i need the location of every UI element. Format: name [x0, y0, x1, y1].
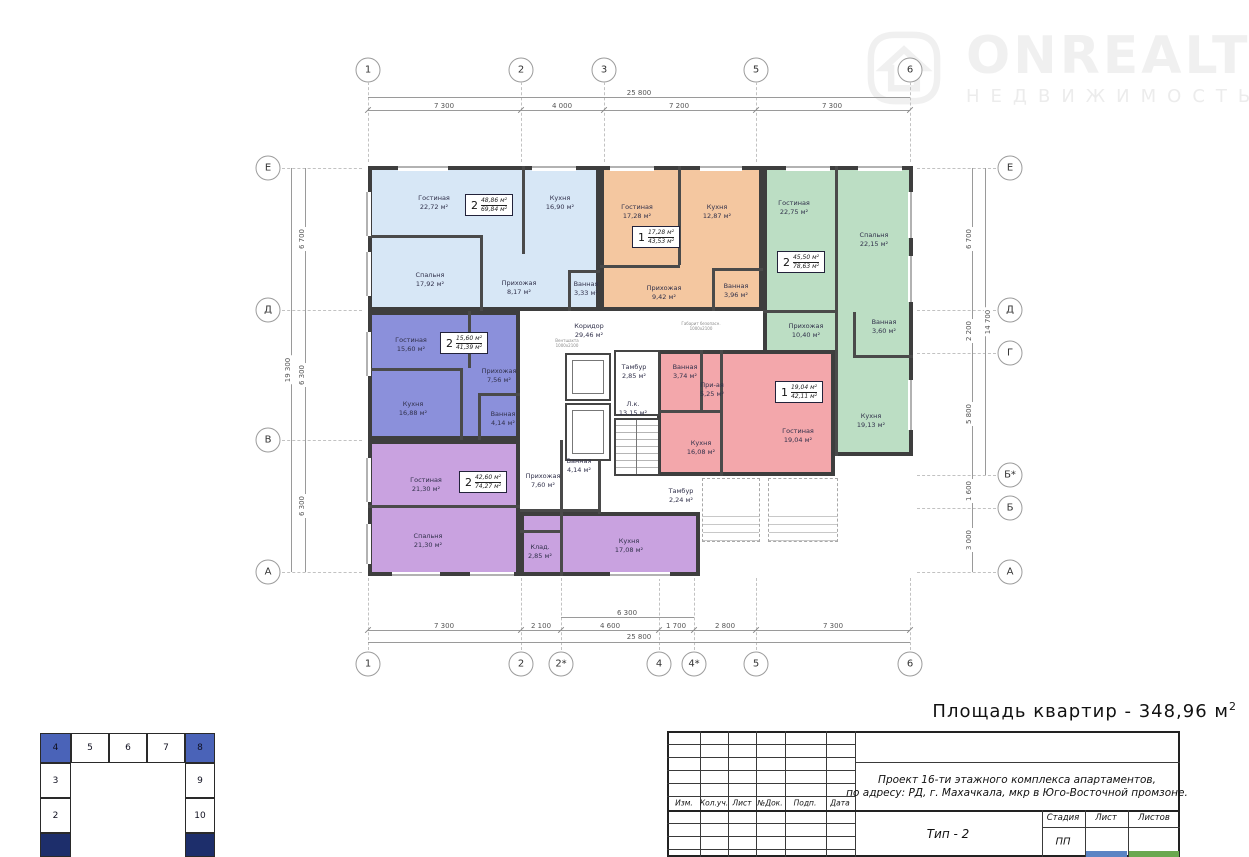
room-area: 22,72 м² [418, 203, 450, 212]
room-name: Гостиная [621, 203, 653, 212]
project-title-line2: по адресу: РД, г. Махачкала, мкр в Юго-В… [846, 787, 1188, 799]
room-label: Кухня 16,90 м² [546, 194, 574, 212]
room-label: Ванная 3,96 м² [724, 282, 749, 300]
wall-segment [712, 268, 715, 311]
tambour-label: Тамбур 2,85 м² [622, 363, 647, 381]
axis-top-3: 3 [592, 58, 617, 83]
room-area: 7,60 м² [526, 481, 561, 490]
room-label: Ванная 3,33 м² [574, 280, 599, 298]
logo-tagline: НЕДВИЖИМОСТЬ [966, 86, 1249, 107]
window [532, 164, 576, 171]
wall-segment [480, 235, 483, 311]
dim-label: 1 700 [664, 622, 688, 630]
badge-total-area: 43,53 м² [648, 238, 674, 246]
wall-segment [520, 530, 562, 533]
title-block-line [667, 744, 855, 745]
total-area-summary: Площадь квартир - 348,96 м2 [932, 700, 1237, 722]
room-name: Прихожая [526, 472, 561, 481]
badge-rooms: 2 [465, 476, 472, 489]
room-name: Гостиная [782, 427, 814, 436]
apartment-area-badge: 2 48,86 м²69,84 м² [465, 194, 513, 216]
wall-segment [568, 270, 600, 273]
axis-top-2: 2 [509, 58, 534, 83]
axis-top-1: 1 [356, 58, 381, 83]
axis-line [368, 82, 369, 162]
axis-right-d: Д [998, 298, 1023, 323]
title-block-line [785, 731, 786, 857]
room-name: Кухня [399, 400, 427, 409]
badge-living-area: 19,04 м² [791, 384, 817, 393]
window [364, 252, 371, 296]
room-label: Прихожая 7,60 м² [526, 472, 561, 490]
room-area: 8,17 м² [502, 288, 537, 297]
title-block-line [855, 762, 1180, 763]
room-name: Кухня [687, 439, 715, 448]
room-area: 3,74 м² [673, 372, 698, 381]
room-area: 15,60 м² [395, 345, 427, 354]
axis-right-a: А [998, 560, 1023, 585]
tb-col-izm: Изм. [675, 799, 693, 808]
dim-line [368, 97, 910, 98]
keyplan-cell-4: 4 [40, 733, 71, 763]
window [364, 524, 371, 564]
keyplan-cell-9: 9 [185, 763, 215, 798]
elevator-cab-icon [572, 360, 604, 394]
badge-rooms: 2 [446, 337, 453, 350]
floorplan-sheet: { "logo": {"brand": "ONREALT", "tagline"… [0, 0, 1249, 857]
room-name: Коридор [574, 322, 604, 331]
room-area: 19,04 м² [782, 436, 814, 445]
dim-label: 25 800 [625, 89, 654, 97]
total-area-sup: 2 [1229, 700, 1237, 713]
axis-line [368, 578, 369, 650]
axis-bottom-6: 6 [898, 652, 923, 677]
axis-left-a: А [256, 560, 281, 585]
window [786, 164, 830, 171]
staircase [614, 418, 660, 476]
apartment-area-badge: 2 42,60 м²74,27 м² [459, 471, 507, 493]
keyplan-cell-8: 8 [185, 733, 215, 763]
axis-line [604, 82, 605, 162]
wall-segment [678, 166, 681, 265]
stamp-cell-green [1129, 851, 1179, 857]
apartment-area-badge: 2 45,50 м²78,63 м² [777, 251, 825, 273]
axis-line [282, 310, 362, 311]
dim-line [561, 617, 694, 618]
room-area: 2,85 м² [528, 552, 552, 561]
room-area: 3,33 м² [574, 289, 599, 298]
room-name: Прихожая [647, 284, 682, 293]
dim-label: 14 700 [984, 308, 992, 337]
axis-top-6: 6 [898, 58, 923, 83]
room-area: 22,75 м² [778, 208, 810, 217]
wall-segment [720, 350, 723, 476]
room-area: 3,96 м² [724, 291, 749, 300]
room-label: Кухня 16,88 м² [399, 400, 427, 418]
dim-line [368, 642, 910, 643]
logo-text: ONREALT НЕДВИЖИМОСТЬ [966, 30, 1249, 107]
axis-line [917, 508, 996, 509]
room-name: Кухня [703, 203, 731, 212]
room-area: 17,08 м² [615, 546, 643, 555]
room-label: Кухня 16,08 м² [687, 439, 715, 457]
elevator-shaft [565, 353, 611, 401]
apartment-area-badge: 1 17,28 м²43,53 м² [632, 226, 680, 248]
room-area: 13,15 м² [619, 409, 647, 418]
keyplan-cell-6: 6 [109, 733, 147, 763]
room-area: 17,92 м² [416, 280, 445, 289]
room-label: Спальня 22,15 м² [860, 231, 889, 249]
room-name: Кухня [615, 537, 643, 546]
badge-living-area: 48,86 м² [481, 197, 507, 206]
room-area: 16,08 м² [687, 448, 715, 457]
room-label: Ванная 4,14 м² [567, 457, 592, 475]
wall-segment [560, 512, 563, 576]
room-label: Гостиная 22,75 м² [778, 199, 810, 217]
keyplan-cell-5: 5 [71, 733, 109, 763]
dim-label: 7 300 [432, 102, 456, 110]
dim-label: 5 800 [965, 402, 973, 426]
dim-line [368, 110, 910, 111]
title-block-line [667, 757, 855, 758]
axis-line [910, 578, 911, 650]
axis-line [659, 578, 660, 650]
room-area: 21,30 м² [410, 485, 442, 494]
badge-total-area: 42,11 м² [791, 393, 817, 401]
room-name: Гостиная [410, 476, 442, 485]
title-block-line [667, 836, 855, 837]
porch-steps [703, 515, 759, 541]
axis-right-b: Б [998, 496, 1023, 521]
room-label: Ванная 3,60 м² [872, 318, 897, 336]
dim-label: 4 000 [550, 102, 574, 110]
axis-line [910, 82, 911, 162]
dim-label: 7 300 [432, 622, 456, 630]
wall-segment [522, 166, 525, 254]
axis-line [561, 578, 562, 650]
room-name: Клад. [528, 543, 552, 552]
axis-left-e: Е [256, 156, 281, 181]
room-area: 21,30 м² [414, 541, 443, 550]
room-name: Прихожая [502, 279, 537, 288]
room-area: 19,13 м² [857, 421, 885, 430]
room-label: Прихожая 8,17 м² [502, 279, 537, 297]
tb-col-list: Лист [732, 799, 751, 808]
title-block-line [1042, 827, 1180, 828]
room-area: 3,60 м² [872, 327, 897, 336]
axis-line [917, 572, 996, 573]
window [908, 256, 915, 302]
room-area: 16,90 м² [546, 203, 574, 212]
room-area: 4,14 м² [491, 419, 516, 428]
room-name: Спальня [860, 231, 889, 240]
badge-living-area: 17,28 м² [648, 229, 674, 238]
dim-label: 7 300 [821, 622, 845, 630]
room-area: 16,88 м² [399, 409, 427, 418]
tb-col-dok: №Док. [757, 799, 782, 808]
room-name: Спальня [416, 271, 445, 280]
keyplan-cell-2: 2 [40, 798, 71, 833]
tb-col-sheets: Листов [1138, 813, 1170, 823]
axis-bottom-2s: 2* [549, 652, 574, 677]
title-block-line [700, 731, 701, 857]
wall-segment [520, 509, 601, 512]
axis-line [917, 475, 996, 476]
dim-label: 3 000 [965, 528, 973, 552]
axis-top-5: 5 [744, 58, 769, 83]
room-name: Тамбур [669, 487, 694, 496]
room-label: Спальня 21,30 м² [414, 532, 443, 550]
axis-bottom-5: 5 [744, 652, 769, 677]
stair-rail [636, 420, 637, 474]
wall-segment [853, 312, 856, 357]
shaft-note: Вентшахта 1000х2100 [555, 338, 578, 348]
room-name: Гостиная [395, 336, 427, 345]
badge-living-area: 45,50 м² [793, 254, 819, 263]
wall-segment [712, 268, 763, 271]
window [364, 458, 371, 502]
keyplan-cell-10: 10 [185, 798, 215, 833]
room-name: Гостиная [778, 199, 810, 208]
wall-segment [763, 310, 837, 313]
room-area: 2,85 м² [622, 372, 647, 381]
room-name: Ванная [872, 318, 897, 327]
keyplan-cell-dark-right [185, 833, 215, 857]
dim-label: 6 700 [298, 227, 306, 251]
title-block-line [667, 810, 1180, 812]
dim-label: 6 300 [298, 363, 306, 387]
stage-value: ПП [1055, 837, 1070, 848]
keyplan-cell-dark-left [40, 833, 71, 857]
room-name: Прихожая [789, 322, 824, 331]
tb-col-podp: Подп. [794, 799, 817, 808]
room-area: 9,42 м² [647, 293, 682, 302]
room-label: Гостиная 15,60 м² [395, 336, 427, 354]
room-label: Гостиная 19,04 м² [782, 427, 814, 445]
room-name: Ванная [574, 280, 599, 289]
room-area: 10,40 м² [789, 331, 824, 340]
wall-segment [368, 505, 520, 508]
badge-rooms: 2 [471, 199, 478, 212]
axis-bottom-4s: 4* [682, 652, 707, 677]
room-label: Спальня 17,92 м² [416, 271, 445, 289]
room-label: Кухня 17,08 м² [615, 537, 643, 555]
room-label: Гостиная 17,28 м² [621, 203, 653, 221]
axis-line [756, 578, 757, 650]
window [858, 164, 902, 171]
badge-total-area: 41,39 м² [456, 344, 482, 352]
room-label: Прихожая 10,40 м² [789, 322, 824, 340]
room-label: Прихожая 7,56 м² [482, 367, 517, 385]
room-label: Ванная 4,14 м² [491, 410, 516, 428]
wall-segment [568, 270, 571, 311]
tb-col-data: Дата [830, 799, 849, 808]
room-name: Тамбур [622, 363, 647, 372]
window [364, 332, 371, 376]
room-area: 17,28 м² [621, 212, 653, 221]
badge-rooms: 1 [781, 386, 788, 399]
tb-col-stage: Стадия [1047, 813, 1080, 823]
window [610, 164, 654, 171]
room-label: Гостиная 22,72 м² [418, 194, 450, 212]
room-name: При-ая [700, 381, 724, 390]
badge-living-area: 42,60 м² [475, 474, 501, 483]
room-name: Л.к. [619, 400, 647, 409]
total-area-text: Площадь квартир - 348,96 м [932, 701, 1229, 722]
axis-right-e: Е [998, 156, 1023, 181]
badge-total-area: 74,27 м² [475, 483, 501, 491]
title-block-line [667, 796, 855, 797]
dim-label: 1 600 [965, 479, 973, 503]
entrance-porch [768, 478, 838, 542]
dim-label: 4 600 [598, 622, 622, 630]
axis-line [282, 168, 362, 169]
wall-segment [657, 410, 723, 413]
porch-steps [769, 515, 837, 541]
room-name: Ванная [673, 363, 698, 372]
room-name: Ванная [724, 282, 749, 291]
window [908, 380, 915, 430]
tb-col-koluch: Кол.уч. [700, 799, 728, 808]
room-area: 2,24 м² [669, 496, 694, 505]
keyplan-cell-7: 7 [147, 733, 185, 763]
title-block-line [826, 731, 827, 857]
dim-line [368, 630, 910, 631]
axis-bottom-2: 2 [509, 652, 534, 677]
window [392, 572, 440, 579]
badge-total-area: 78,63 м² [793, 263, 819, 271]
wall-segment [478, 393, 481, 440]
title-block-line [1042, 810, 1043, 857]
room-label: Ванная 3,74 м² [673, 363, 698, 381]
room-label: Кухня 12,87 м² [703, 203, 731, 221]
dim-label: 2 200 [965, 319, 973, 343]
wall-segment [368, 368, 462, 371]
title-block-line [1085, 810, 1086, 857]
wall-segment [600, 265, 680, 268]
entrance-porch [702, 478, 760, 542]
apartment-area-badge: 2 15,60 м²41,39 м² [440, 332, 488, 354]
wall-segment [368, 235, 482, 238]
dim-label: 2 100 [529, 622, 553, 630]
elevator-cab-icon [572, 410, 604, 454]
tb-col-sheet: Лист [1095, 813, 1117, 823]
apartment-blue [368, 166, 600, 311]
tambour-label: Тамбур 2,24 м² [669, 487, 694, 505]
room-label: Кухня 19,13 м² [857, 412, 885, 430]
window [470, 572, 514, 579]
room-name: Кухня [546, 194, 574, 203]
room-name: Ванная [491, 410, 516, 419]
axis-bottom-1: 1 [356, 652, 381, 677]
room-area: 7,56 м² [482, 376, 517, 385]
title-block-line [667, 849, 855, 850]
room-area: 12,87 м² [703, 212, 731, 221]
dim-label: 2 800 [713, 622, 737, 630]
dim-label: 6 300 [298, 494, 306, 518]
axis-line [282, 440, 362, 441]
axis-right-bs: Б* [998, 463, 1023, 488]
wall-segment [460, 368, 463, 440]
apartment-area-badge: 1 19,04 м²42,11 м² [775, 381, 823, 403]
room-name: Гостиная [418, 194, 450, 203]
room-label: При-ая 5,25 м² [700, 381, 724, 399]
axis-line [756, 82, 757, 162]
wall-segment [853, 355, 913, 358]
room-name: Спальня [414, 532, 443, 541]
room-name: Кухня [857, 412, 885, 421]
dim-label: 25 800 [625, 633, 654, 641]
dim-label: 7 300 [820, 102, 844, 110]
badge-rooms: 2 [783, 256, 790, 269]
apartment-violet [368, 440, 520, 576]
title-block-line [667, 770, 855, 771]
axis-line [694, 578, 695, 650]
axis-left-v: В [256, 428, 281, 453]
title-block-line [1128, 810, 1129, 857]
title-block-line [667, 823, 855, 824]
axis-right-g: Г [998, 341, 1023, 366]
logo-brand: ONREALT [966, 30, 1249, 82]
badge-living-area: 15,60 м² [456, 335, 482, 344]
stamp-cell-blue [1086, 851, 1127, 857]
dim-label: 6 700 [965, 227, 973, 251]
stair-label: Л.к. 13,15 м² [619, 400, 647, 418]
dim-label: 7 200 [667, 102, 691, 110]
axis-line [521, 578, 522, 650]
clearance-note: Габарит безопасн. 1000х2100 [681, 321, 720, 331]
badge-total-area: 69,84 м² [481, 206, 507, 214]
axis-bottom-4: 4 [647, 652, 672, 677]
type-label: Тип - 2 [927, 827, 970, 841]
window [398, 164, 448, 171]
room-label: Гостиная 21,30 м² [410, 476, 442, 494]
room-name: Прихожая [482, 367, 517, 376]
title-block-line [667, 783, 855, 784]
window [908, 192, 915, 238]
window [610, 572, 670, 579]
room-name: Ванная [567, 457, 592, 466]
window [364, 192, 371, 236]
keyplan-cell-3: 3 [40, 763, 71, 798]
dim-label: 19 300 [284, 356, 292, 385]
room-area: 22,15 м² [860, 240, 889, 249]
badge-rooms: 1 [638, 231, 645, 244]
axis-line [282, 572, 362, 573]
window [700, 164, 742, 171]
elevator-shaft [565, 403, 611, 461]
room-area: 5,25 м² [700, 390, 724, 399]
title-block-line [756, 731, 757, 857]
room-label: Прихожая 9,42 м² [647, 284, 682, 302]
title-block-line [728, 731, 729, 857]
axis-line [521, 82, 522, 162]
dim-label: 6 300 [615, 609, 639, 617]
wall-segment [478, 393, 520, 396]
room-area: 4,14 м² [567, 466, 592, 475]
project-title-line1: Проект 16-ти этажного комплекса апартаме… [878, 774, 1156, 786]
axis-left-d: Д [256, 298, 281, 323]
room-label: Клад. 2,85 м² [528, 543, 552, 561]
